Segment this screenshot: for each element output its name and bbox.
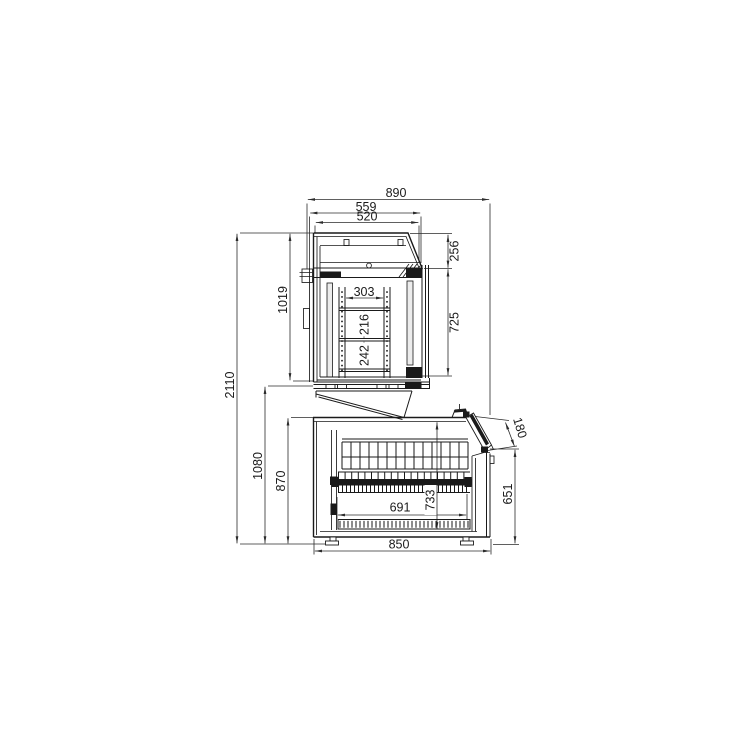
- dim-label-lower-body-height: 870: [274, 471, 288, 492]
- dim-label-upper-door-height: 725: [448, 312, 462, 333]
- dim-label-shelf-gap-lower: 242: [358, 345, 372, 366]
- dim-label-shelf-clear-depth: 303: [354, 285, 375, 299]
- door-bottom-frame: [406, 367, 422, 378]
- dim-label-front-height: 651: [501, 484, 515, 505]
- lower-cabinet: [313, 404, 494, 545]
- dim-label-well-depth: 691: [390, 501, 411, 515]
- dim-label-upper-unit-height: 1019: [276, 286, 290, 314]
- rear-box: [304, 309, 310, 329]
- base-foot: [389, 385, 398, 389]
- wedge-duct: [316, 391, 412, 420]
- door-sill: [405, 382, 422, 389]
- base-foot: [326, 385, 335, 389]
- bumper-bar: [334, 479, 472, 486]
- base-foot: [338, 385, 347, 389]
- base-foot: [377, 385, 386, 389]
- bumper-end-cap: [332, 477, 339, 487]
- dimension-lines: [237, 200, 515, 552]
- flap-bottom-cap: [481, 447, 488, 453]
- foot: [330, 537, 336, 541]
- drawing-canvas: 890 559 520 2110 1019 1080 870 256 725 3…: [0, 0, 750, 750]
- foot-base: [326, 541, 339, 545]
- dim-label-base-depth: 850: [389, 538, 410, 552]
- interior-back-panel: [327, 283, 333, 377]
- lock-bump: [490, 456, 494, 464]
- drain-fitting: [331, 504, 338, 516]
- dimension-extension-lines: [240, 204, 519, 555]
- top-panel-clip: [344, 240, 349, 246]
- dim-label-well-height: 733: [424, 490, 438, 511]
- dim-label-lower-section-height: 1080: [251, 452, 265, 480]
- bumper-end-cap: [465, 477, 472, 487]
- dim-label-overall-height: 2110: [223, 372, 237, 399]
- dim-label-upper-canopy-height: 256: [448, 241, 462, 262]
- door-top-frame: [406, 268, 422, 278]
- door-glass: [407, 281, 413, 365]
- dim-label-front-flap-depth: 180: [510, 416, 529, 440]
- front-wall: [487, 451, 491, 537]
- technical-drawing: 890 559 520 2110 1019 1080 870 256 725 3…: [0, 0, 750, 750]
- flap-hinge-cap: [463, 412, 470, 418]
- ceiling-hole: [367, 263, 372, 268]
- dim-label-upper-inner-depth: 520: [357, 210, 378, 224]
- canopy-lamp: [320, 272, 341, 279]
- dim-label-shelf-gap-upper: 216: [358, 314, 372, 335]
- foot: [463, 537, 469, 541]
- rear-bracket: [302, 269, 313, 283]
- upper-door: [422, 265, 429, 378]
- dim-label-overall-depth: 890: [386, 186, 407, 200]
- top-panel-clip: [398, 240, 403, 246]
- foot-base: [461, 541, 474, 545]
